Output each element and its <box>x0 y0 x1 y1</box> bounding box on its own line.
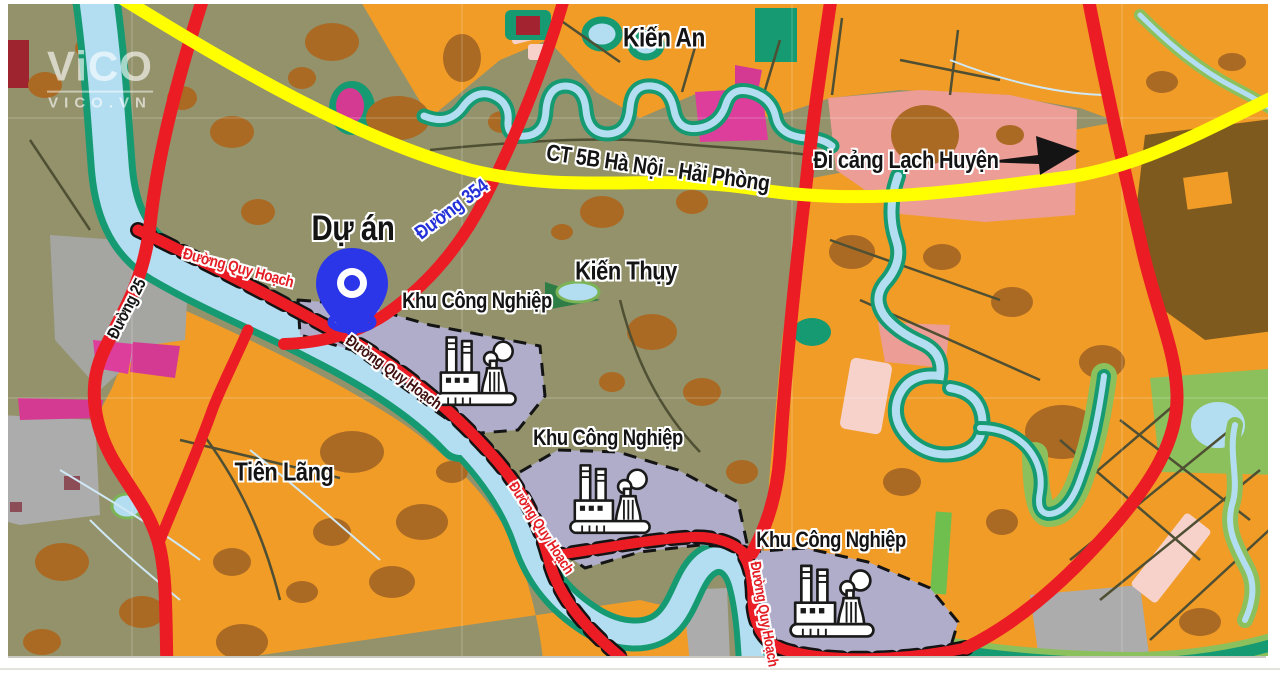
planning-map-page: Kiến AnCT 5B Hà Nội - Hải PhòngĐi cảng L… <box>0 0 1280 676</box>
map-graphic <box>0 0 1280 676</box>
vico-logo-watermark: ViCO VICO.VN <box>47 45 153 112</box>
map-viewport[interactable]: Kiến AnCT 5B Hà Nội - Hải PhòngĐi cảng L… <box>0 0 1280 676</box>
logo-text: ViCO <box>47 45 153 89</box>
logo-url: VICO.VN <box>47 91 153 112</box>
